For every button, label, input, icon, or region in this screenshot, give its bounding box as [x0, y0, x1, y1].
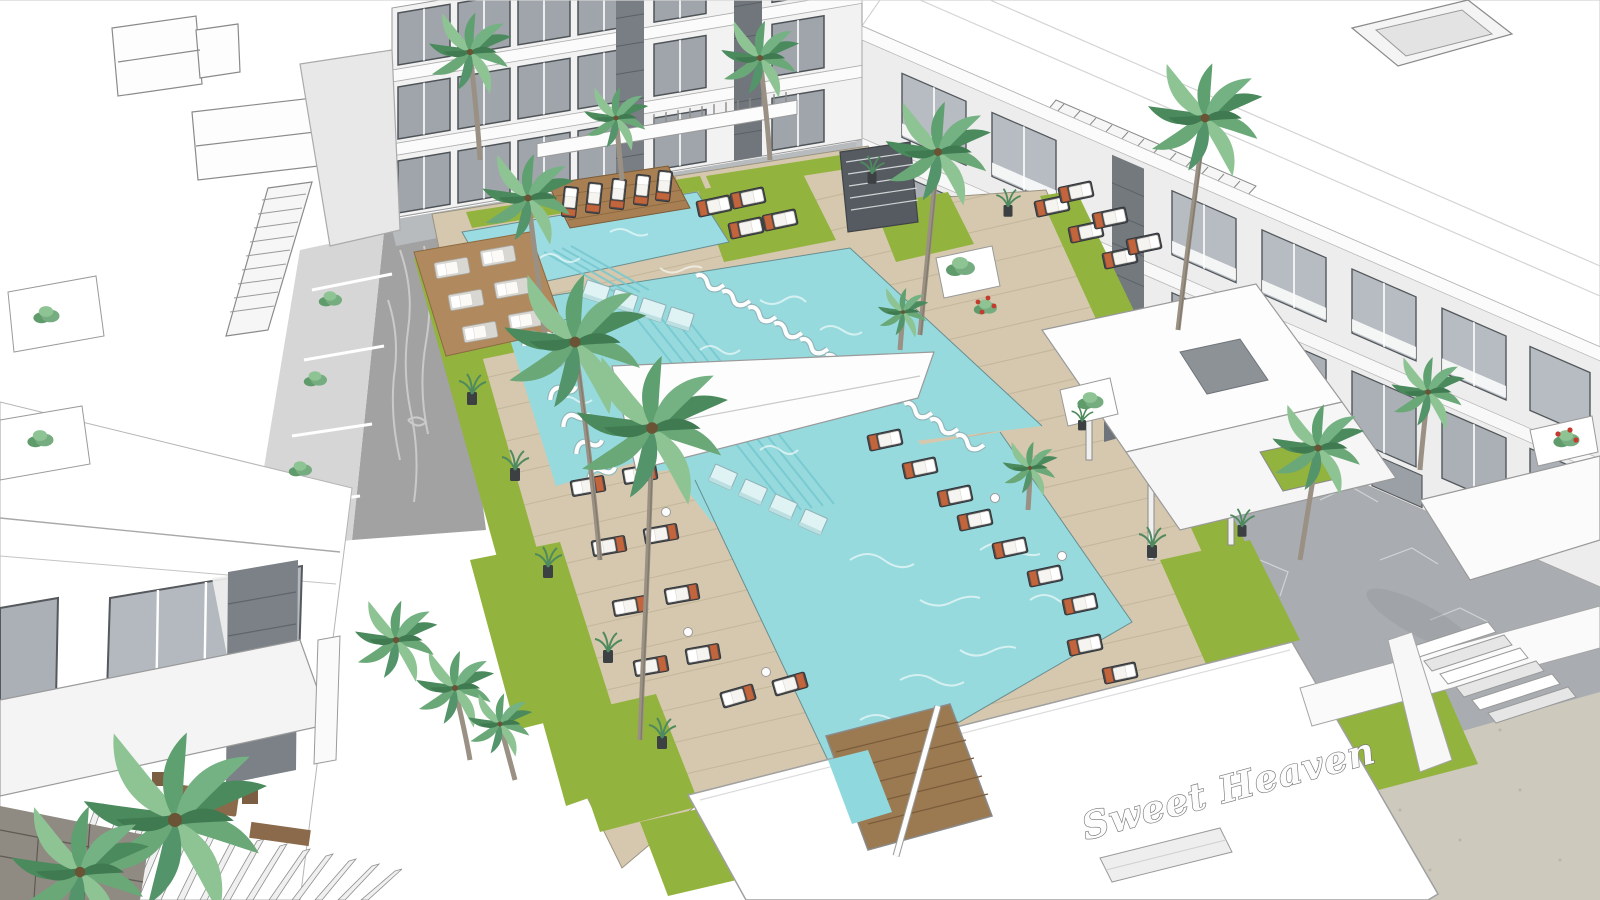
rendering-stage: Sweet Heaven [0, 0, 1600, 900]
lounger [655, 170, 673, 202]
lounger [633, 174, 651, 206]
lounger [561, 186, 579, 218]
white-column [314, 636, 340, 764]
lounger [609, 178, 627, 210]
resort-rendering: Sweet Heaven [0, 0, 1600, 900]
roof-box-step [196, 24, 240, 78]
lounger [585, 182, 603, 214]
